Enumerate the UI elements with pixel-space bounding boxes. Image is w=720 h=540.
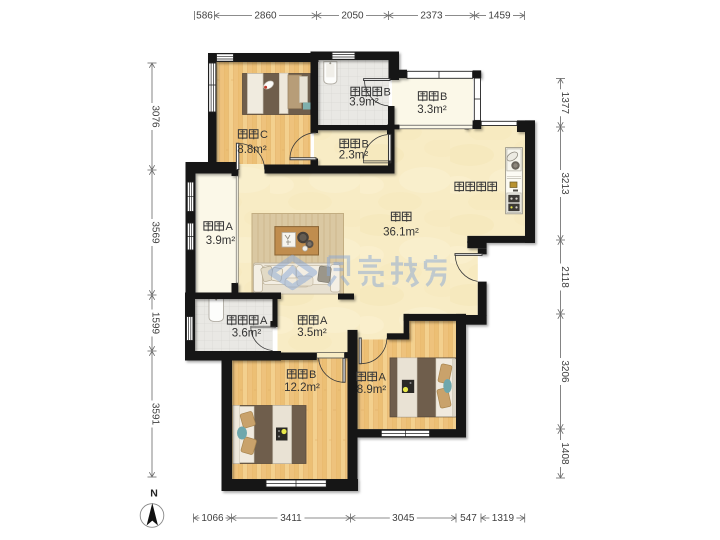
svg-text:3591: 3591 — [150, 403, 161, 426]
svg-text:2860: 2860 — [254, 11, 277, 22]
svg-text:3.6m²: 3.6m² — [232, 328, 262, 340]
svg-text:3411: 3411 — [280, 513, 302, 524]
svg-text:12.2m²: 12.2m² — [284, 382, 320, 394]
svg-text:3569: 3569 — [150, 221, 161, 244]
svg-text:2373: 2373 — [420, 11, 443, 22]
svg-text:8.9m²: 8.9m² — [357, 384, 387, 396]
svg-text:A: A — [379, 372, 387, 384]
svg-text:3076: 3076 — [150, 105, 161, 128]
svg-text:A: A — [320, 315, 328, 327]
svg-text:3045: 3045 — [392, 513, 415, 524]
svg-text:3.9m²: 3.9m² — [206, 235, 236, 247]
svg-text:3.3m²: 3.3m² — [417, 104, 447, 116]
svg-text:1459: 1459 — [488, 11, 511, 22]
svg-text:1599: 1599 — [150, 312, 161, 335]
svg-text:3213: 3213 — [559, 172, 570, 195]
svg-text:36.1m²: 36.1m² — [383, 227, 419, 239]
svg-text:N: N — [150, 488, 158, 500]
svg-text:B: B — [384, 87, 391, 99]
svg-text:1066: 1066 — [201, 513, 224, 524]
svg-text:8.8m²: 8.8m² — [237, 144, 267, 156]
svg-text:586: 586 — [196, 11, 213, 22]
svg-text:1408: 1408 — [559, 442, 570, 465]
svg-text:B: B — [440, 91, 447, 103]
svg-text:1319: 1319 — [492, 513, 515, 524]
svg-text:A: A — [226, 221, 234, 233]
svg-text:547: 547 — [460, 513, 477, 524]
svg-text:3.5m²: 3.5m² — [297, 327, 327, 339]
svg-text:B: B — [309, 369, 316, 381]
svg-text:2118: 2118 — [559, 266, 570, 288]
svg-text:C: C — [260, 129, 268, 141]
svg-text:2050: 2050 — [341, 11, 364, 22]
svg-text:2.3m²: 2.3m² — [339, 150, 369, 162]
svg-text:3206: 3206 — [559, 360, 570, 383]
svg-text:A: A — [260, 315, 268, 327]
svg-text:3.9m²: 3.9m² — [349, 97, 379, 109]
svg-text:1377: 1377 — [559, 92, 570, 115]
